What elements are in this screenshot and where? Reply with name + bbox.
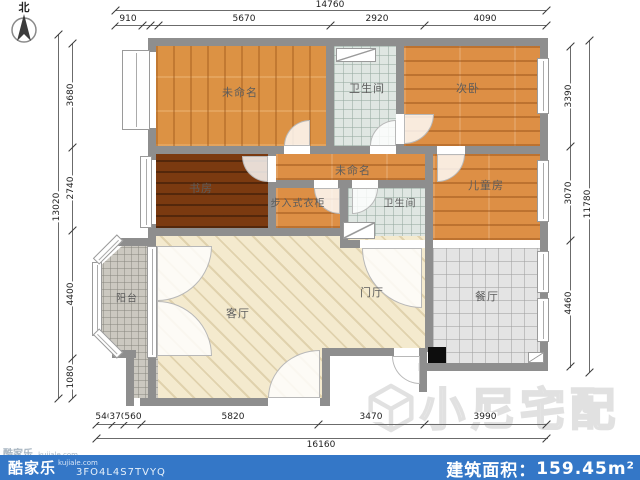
plan-code: 3FO4L4S7TVYQ: [76, 467, 166, 478]
door-opening: [314, 180, 338, 188]
compass-north-label: 北: [6, 2, 42, 13]
wall-segment: [148, 356, 156, 406]
dim-label: 3070: [564, 181, 574, 206]
dim-label: 1080: [66, 365, 76, 390]
wall-segment: [425, 248, 433, 352]
door-opening: [268, 156, 276, 182]
compass: 北: [6, 2, 42, 46]
bedroom-window: [537, 58, 549, 114]
column-block: [428, 347, 446, 363]
dining-window: [537, 251, 549, 293]
wall-segment: [418, 363, 548, 371]
wall-segment: [328, 348, 394, 356]
dining-window: [537, 298, 549, 342]
area-label: 建筑面积：: [446, 456, 536, 480]
dim-line: [96, 438, 548, 439]
area-unit: m²: [608, 459, 635, 479]
door-opening: [360, 240, 425, 248]
bay-window: [122, 50, 150, 130]
dim-label: 13020: [52, 192, 62, 223]
room-label-entry-hall: 门厅: [360, 284, 384, 300]
bathroom-fixture: [343, 222, 375, 239]
wall-segment: [326, 46, 334, 146]
wall-segment: [148, 38, 548, 46]
compass-icon: [7, 13, 41, 45]
room-label-bathroom-top: 卫生间: [349, 80, 385, 96]
floor-drain: [528, 352, 544, 363]
room-label-kids-room: 儿童房: [468, 177, 504, 193]
footer-bar: 酷家乐 kujiale.com 3FO4L4S7TVYQ 建筑面积：159.45…: [0, 455, 640, 480]
door-opening: [396, 114, 404, 144]
door-opening: [284, 146, 310, 154]
wall-segment: [148, 146, 548, 154]
dim-line: [115, 10, 546, 11]
room-label-unnamed-top: 未命名: [222, 84, 258, 100]
dim-label: 4400: [66, 282, 76, 307]
dim-label: 2740: [66, 176, 76, 201]
room-label-unnamed-mid: 未命名: [335, 162, 371, 178]
dim-label: 14760: [315, 0, 346, 10]
door-opening: [437, 146, 465, 154]
dim-label: 3390: [564, 84, 574, 109]
bathroom-fixture: [336, 48, 376, 62]
dim-label: 560: [123, 412, 142, 422]
dim-label: 3470: [359, 412, 384, 422]
area-value: 159.45: [536, 459, 608, 479]
room-label-bathroom-mid: 卫生间: [384, 195, 417, 210]
dim-line: [96, 424, 546, 425]
balcony-window: [92, 262, 102, 336]
wall-segment: [322, 348, 330, 406]
door-opening: [370, 146, 396, 154]
dim-label: 3680: [66, 83, 76, 108]
watermark-text: 小尼宅配: [420, 382, 620, 438]
dim-label: 910: [118, 14, 137, 24]
kids-window: [537, 160, 549, 222]
room-label-walkin-closet: 步入式衣柜: [271, 195, 326, 210]
dim-label: 4460: [564, 291, 574, 316]
dim-label: 11780: [583, 189, 593, 220]
floorplan-screenshot: 小尼宅配 14760 910 5670 2920 4090 540 370 56…: [0, 0, 640, 480]
room-label-study: 书房: [189, 180, 213, 196]
study-window: [140, 156, 152, 228]
room-label-balcony: 阳台: [116, 290, 138, 305]
building-area: 建筑面积：159.45m²: [446, 456, 635, 480]
dim-label: 5670: [232, 14, 257, 24]
dim-label: 4090: [473, 14, 498, 24]
wall-segment: [148, 228, 348, 236]
wall-segment: [425, 154, 433, 248]
wall-segment: [126, 356, 134, 406]
room-label-dining-room: 餐厅: [475, 288, 499, 304]
room-label-second-bedroom: 次卧: [456, 80, 480, 96]
dim-label: 2920: [365, 14, 390, 24]
french-door-frame: [147, 246, 157, 358]
door-opening: [268, 398, 320, 406]
brand-domain: kujiale.com: [58, 459, 98, 467]
room-label-living-room: 客厅: [226, 305, 250, 321]
dim-label: 5820: [221, 412, 246, 422]
brand-logo: 酷家乐: [8, 457, 56, 478]
door-opening: [394, 348, 419, 356]
wall-segment: [419, 348, 427, 392]
floor-dining: [433, 248, 540, 363]
dim-label: 3990: [473, 412, 498, 422]
dim-label: 16160: [306, 440, 337, 450]
door-opening: [352, 180, 378, 188]
